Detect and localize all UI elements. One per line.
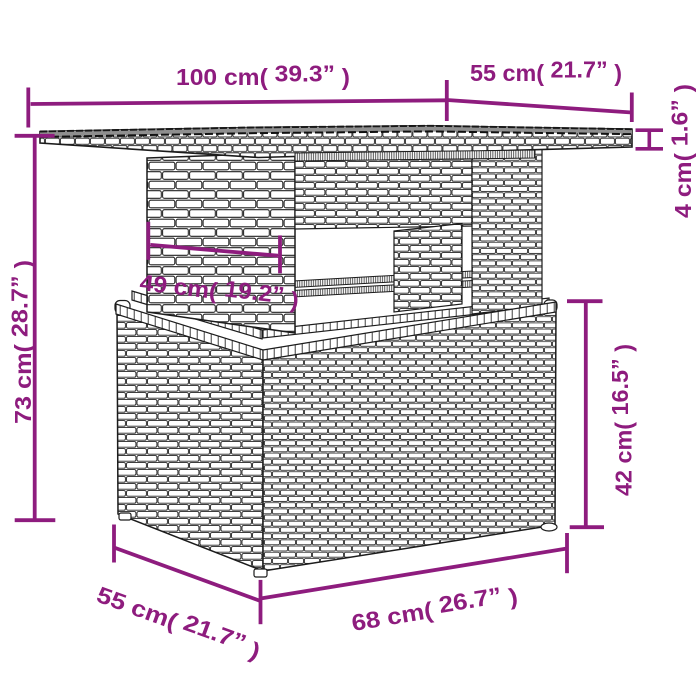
svg-text:73 cm( 28.7” ): 73 cm( 28.7” ) bbox=[7, 260, 37, 424]
svg-text:42 cm( 16.5” ): 42 cm( 16.5” ) bbox=[607, 344, 637, 496]
svg-text:55 cm( 21.7” ): 55 cm( 21.7” ) bbox=[470, 57, 622, 87]
svg-text:100 cm( 39.3” ): 100 cm( 39.3” ) bbox=[176, 61, 350, 91]
svg-text:4 cm( 1.6” ): 4 cm( 1.6” ) bbox=[667, 84, 697, 218]
